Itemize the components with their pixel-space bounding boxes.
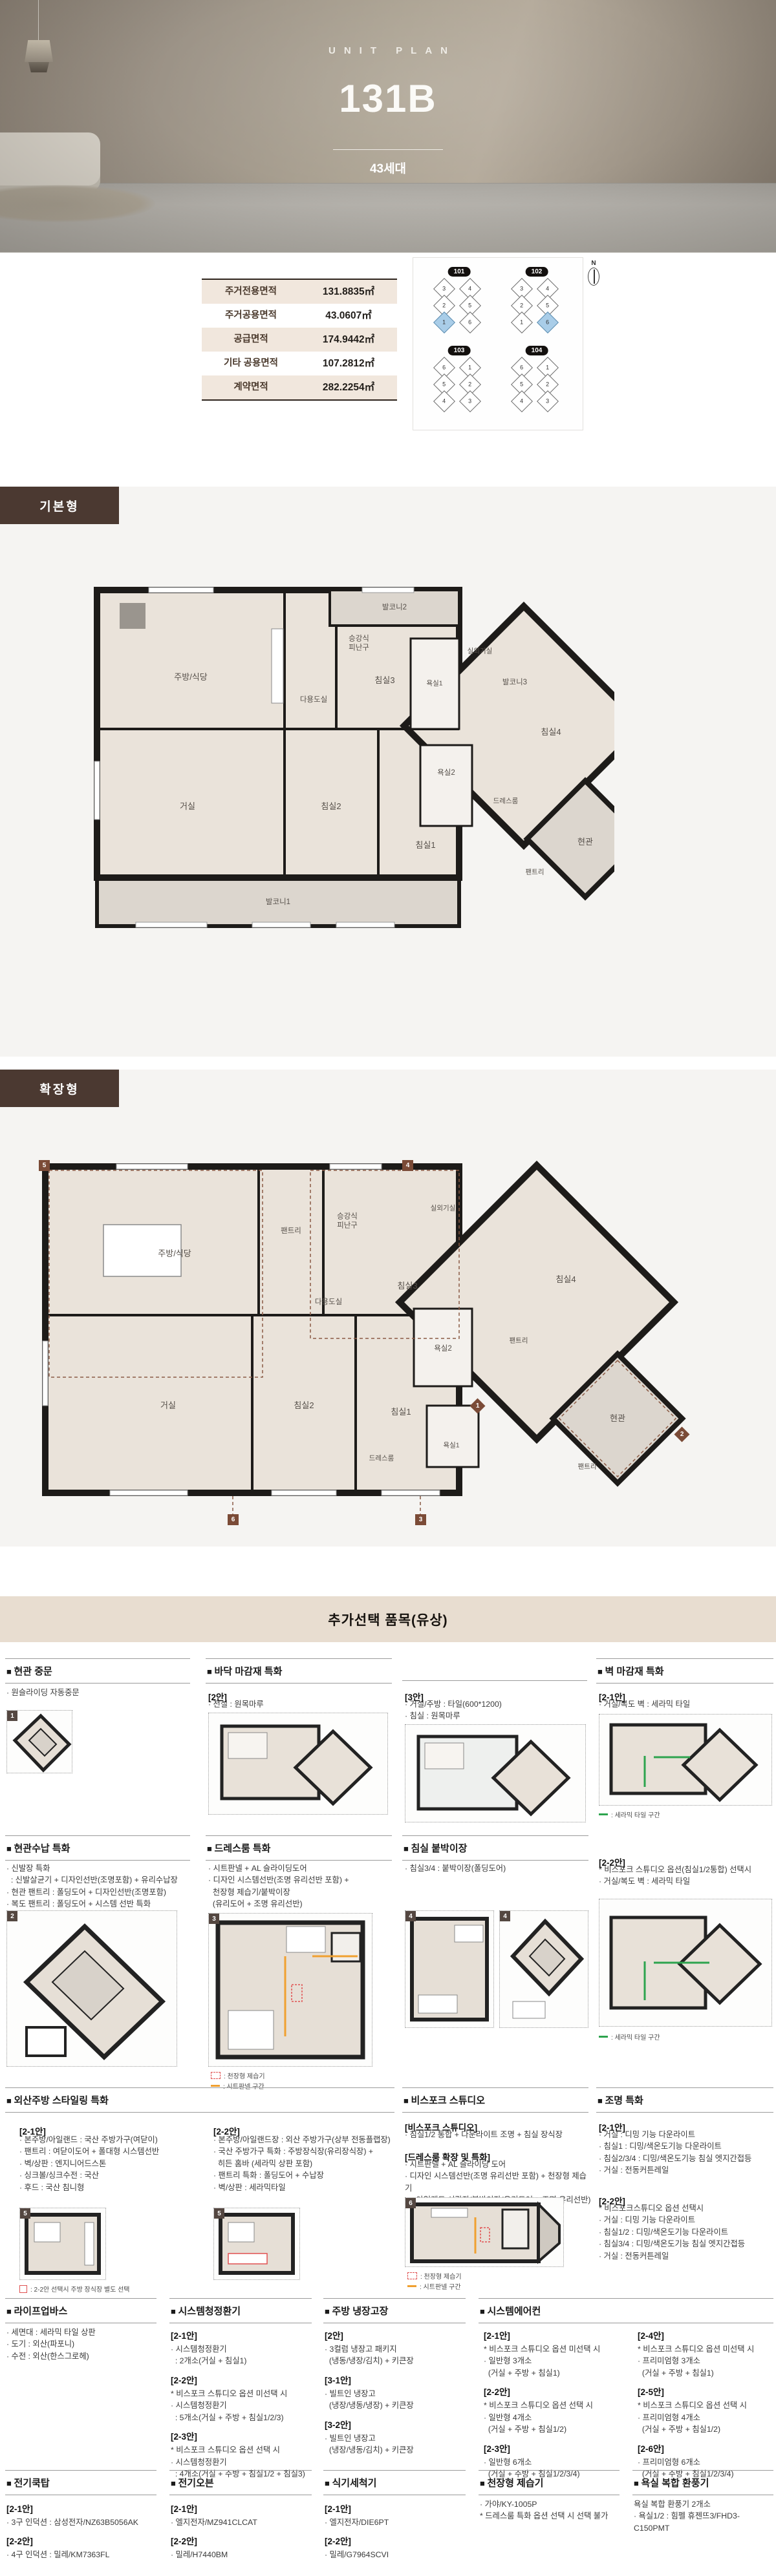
room-label: 주방/식당 (158, 1249, 191, 1259)
room-label: 실외기실 (431, 1204, 456, 1212)
section-title-dehumidifier: 천장형 제습기 (479, 2470, 620, 2495)
option-line: · 거실 : 디밍 기능 다운라이트 (599, 2129, 775, 2140)
section-title-oven: 전기오븐 (169, 2470, 312, 2495)
option-line: · 침실3/4 : 붙박이장(폴딩도어) (405, 1863, 587, 1874)
option-line: · 후드 : 국산 침니형 (19, 2182, 200, 2193)
option-line: 히든 홈바 (세라믹 상판 포함) (213, 2158, 400, 2170)
room-label: 침실4 (541, 727, 561, 737)
red-dashed-box-icon (211, 2072, 221, 2079)
option-line: · 시스템청정환기 (171, 2343, 313, 2355)
room-label: 거실 (160, 1400, 176, 1411)
option-line: * 비스포크 스튜디오 옵션 선택 시 (638, 2400, 773, 2411)
option-line: · 빌트인 냉장고 (325, 2388, 467, 2400)
option-line: · 수전 : 외산(한스그로헤) (6, 2350, 155, 2362)
option-line: (거실 + 주방 + 침실1) (638, 2367, 773, 2379)
legend-label: : 천장형 제습기 (420, 2271, 462, 2281)
option-line: 천장형 제습기/붙박이장 (208, 1886, 393, 1898)
option-lines: · 전실 : 원목마루 (208, 1698, 389, 1710)
option-line: · 빌트인 냉장고 (325, 2433, 467, 2444)
area-table: 주거전용면적 131.8835㎡ 주거공용면적 43.0607㎡ 공급면적 17… (202, 279, 397, 401)
room-label: 침실1 (415, 840, 435, 850)
section-title-builtin-closet: 침실 붙박이장 (402, 1835, 588, 1861)
area-label: 주거전용면적 (202, 280, 300, 304)
option-line: · 전실 : 원목마루 (208, 1698, 389, 1710)
room-label: 팬트리 (281, 1227, 301, 1236)
option-line: · 일반형 4개소 (484, 2412, 622, 2423)
section-title-dishwasher: 식기세척기 (323, 2470, 466, 2495)
option-line: · 거실/복도 벽 : 세라믹 타일 (599, 1698, 772, 1710)
area-label: 기타 공용면적 (202, 352, 300, 375)
option-line: * 비스포크 스튜디오 옵션 선택 시 (171, 2444, 313, 2456)
red-dashed-box-icon (407, 2272, 417, 2279)
proposal-head: [2-6안] (638, 2442, 773, 2455)
oven-groups: [2-1안] · 엘지전자/MZ941CLCAT [2-2안] · 밀레/H74… (171, 2496, 313, 2561)
room-label: 팬트리 (578, 1462, 597, 1471)
option-line: * 비스포크 스튜디오 옵션 미선택 시 (484, 2343, 622, 2355)
wall-finish-plan22-thumbnail (599, 1899, 772, 2027)
thumbnail-number-badge: 6 (405, 2198, 416, 2208)
proposal-head: [2-3안] (484, 2442, 622, 2455)
unit-cell: 4 (433, 390, 455, 412)
room-label: 욕실1 (426, 679, 442, 688)
option-line: · 벽/상판 : 엔지니어드스톤 (19, 2158, 200, 2170)
legend-label: : 세라믹 타일 구간 (611, 2032, 660, 2042)
option-lines: * 비스포크 스튜디오 옵션(침실1/2통합) 선택시· 거실/복도 벽 : 세… (599, 1864, 775, 1888)
section-title-bath-fan: 욕실 복합 환풍기 (632, 2470, 773, 2495)
option-line: · 디자인 시스템선반(조명 유리선반 포함) + (208, 1874, 393, 1886)
building-badge: 101 (448, 267, 471, 277)
option-line: (거실 + 주방 + 침실1/2) (638, 2423, 773, 2435)
option-line: · 싱크볼/싱크수전 : 국산 (19, 2170, 200, 2181)
option-line: * 비스포크 스튜디오 옵션 선택 시 (484, 2400, 622, 2411)
orange-line-icon (407, 2285, 416, 2287)
option-lines: · 거실 : 디밍 기능 다운라이트· 침실1 : 디밍/색온도기능 다운라이트… (599, 2129, 775, 2177)
building-badge: 102 (526, 267, 548, 277)
room-label: 거실 (180, 801, 195, 812)
room-label: 팬트리 (526, 868, 544, 876)
area-value: 174.9442㎡ (300, 328, 397, 352)
option-line: · 시스템청정환기 (171, 2456, 313, 2468)
room-label: 승강식 피난구 (337, 1212, 358, 1231)
option-line: · 시트판넬 + AL 슬라이딩 도어 (405, 2159, 592, 2170)
option-lines: · 가야/KY-1005P* 드레스룸 특화 옵션 선택 시 선택 불가 (480, 2498, 622, 2522)
divider (402, 1680, 587, 1681)
proposal-head: [2-2안] (484, 2385, 622, 2398)
table-row: 주거전용면적 131.8835㎡ (202, 280, 397, 304)
option-line: · 현관 팬트리 : 폴딩도어 + 디자인선반(조명포함) (6, 1886, 194, 1898)
aircon-col-b: [2-4안] * 비스포크 스튜디오 옵션 미선택 시· 프리미엄형 3개소 (… (638, 2323, 773, 2480)
room-label: 드레스룸 (493, 797, 519, 805)
option-line: · 세면대 : 세라믹 타일 상판 (6, 2327, 155, 2338)
unit-cell-highlighted: 1 (433, 311, 455, 333)
hero-divider (333, 149, 443, 150)
wall-finish-plan21-thumbnail (599, 1714, 772, 1806)
option-lines: · 시트판넬 + AL 슬라이딩도어· 디자인 시스템선반(조명 유리선반 포함… (208, 1863, 393, 1910)
option-line: : 2개소(거실 + 침실1) (171, 2355, 313, 2367)
option-line: · 4구 인덕션 : 밀레/KM7363FL (6, 2549, 158, 2560)
bespoke-studio-plan-thumbnail: 6 (405, 2197, 564, 2267)
option-line: · 원슬라이딩 자동중문 (6, 1687, 188, 1698)
section-title-import-kitchen: 외산주방 스타일링 특화 (5, 2087, 394, 2113)
legend-kitchen-cabinet-note: : 2-2안 선택시 주방 장식장 별도 선택 (19, 2284, 130, 2294)
option-lines: · 세면대 : 세라믹 타일 상판· 도기 : 외산(파포니)· 수전 : 외산… (6, 2327, 155, 2362)
section-title-entrance-door: 현관 중문 (5, 1658, 190, 1684)
option-line: · 거실 : 디밍 기능 다운라이트 (599, 2214, 775, 2226)
room-label: 침실2 (294, 1400, 314, 1411)
option-line: · 팬트리 : 여닫이도어 + 폴대형 시스템선반 (19, 2146, 200, 2157)
proposal-head: [2-1안] (171, 2328, 313, 2341)
option-line: (거실 + 주방 + 침실1) (484, 2367, 622, 2379)
extended-floor-plan: 주방/식당 팬트리 승강식 피난구 실외기실 침실4 침실3 다용도실 욕실2 … (19, 1147, 757, 1535)
option-line: · 본주방/아일랜드 : 국산 주방가구(여닫이) (19, 2134, 200, 2146)
building-103: 103 6 1 5 2 4 3 (424, 346, 495, 423)
thumbnail-number-badge: 5 (20, 2208, 30, 2219)
option-line: * 비스포크스튜디오 옵션 선택시 (599, 2202, 775, 2214)
legend-label: : 천장형 제습기 (224, 2071, 265, 2080)
option-line: · 거실 : 전동커튼레일 (599, 2250, 775, 2262)
option-line: · 일반형 6개소 (484, 2456, 622, 2468)
entrance-door-plan-thumbnail: 1 (6, 1710, 72, 1773)
section-title-floor-finish: 바닥 마감재 특화 (206, 1658, 392, 1684)
section-title-lighting: 조명 특화 (596, 2087, 773, 2113)
builtin-closet-plan-thumbnail-a: 4 (405, 1910, 494, 2028)
option-line: · 침실1/2 : 디밍/색온도기능 다운라이트 (599, 2226, 775, 2238)
dishwasher-groups: [2-1안] · 엘지전자/DIE6PT [2-2안] · 밀레/G7964SC… (325, 2496, 467, 2561)
room-label: 욕실2 (434, 1344, 452, 1353)
legend-dehumidifier: : 천장형 제습기 (407, 2271, 462, 2281)
area-label: 주거공용면적 (202, 304, 300, 328)
option-line: · 침실1 : 디밍/색온도기능 다운라이트 (599, 2140, 775, 2152)
building-102: 102 3 4 2 5 1 6 (501, 267, 572, 344)
proposal-head: [2-5안] (638, 2385, 773, 2398)
option-line: 욕실 복합 환풍기 2개소 (634, 2498, 775, 2510)
option-line: · 국산 주방가구 특화 : 주방장식장(유리장식장) + (213, 2146, 400, 2157)
building-location-map: 101 3 4 2 5 1 6 102 3 4 2 5 1 6 103 6 1 … (413, 257, 583, 430)
option-marker-4: 4 (402, 1160, 413, 1171)
option-line: · 팬트리 특화 : 폴딩도어 + 수납장 (213, 2170, 400, 2181)
option-line: · 밀레/H7440BM (171, 2549, 313, 2560)
building-badge: 103 (448, 346, 471, 355)
orange-line-icon (211, 2085, 220, 2087)
page-title: 131B (0, 76, 776, 121)
section-title-entrance-storage: 현관수납 특화 (5, 1835, 190, 1861)
entrance-storage-plan-thumbnail: 2 (6, 1910, 177, 2067)
proposal-head: [2-2안] (171, 2534, 313, 2547)
unit-cell: 4 (511, 390, 533, 412)
legend-ceramic-tile: : 세라믹 타일 구간 (599, 1810, 660, 1819)
green-line-icon (599, 1813, 608, 1815)
room-label: 발코니3 (502, 678, 527, 687)
option-line: · 침실3/4 : 디밍/색온도기능 침실 엣지간접등 (599, 2238, 775, 2250)
proposal-head: [2안] (325, 2328, 467, 2341)
room-label: 침실4 (555, 1274, 576, 1285)
building-104: 104 6 1 5 2 4 3 (501, 346, 572, 423)
option-line: · 가야/KY-1005P (480, 2498, 622, 2510)
option-line: · 욕실1/2 : 힘펠 휴젠뜨3/FHD3-C150PMT (634, 2510, 775, 2534)
dressroom-plan-thumbnail: 3 (208, 1913, 372, 2067)
area-label: 계약면적 (202, 375, 300, 399)
option-lines: · 침실1/2 통합 + 다운라이트 조명 + 침실 장식장 (405, 2129, 590, 2140)
option-line: · 도기 : 외산(파포니) (6, 2338, 155, 2350)
option-marker-3: 3 (415, 1514, 426, 1525)
room-label: 현관 (610, 1413, 625, 1424)
proposal-head: [3-1안] (325, 2373, 467, 2386)
proposal-head: [2-1안] (484, 2328, 622, 2341)
option-line: * 비스포크 스튜디오 옵션(침실1/2통합) 선택시 (599, 1864, 775, 1875)
area-label: 공급면적 (202, 328, 300, 352)
area-value: 43.0607㎡ (300, 304, 397, 328)
proposal-head: [2-4안] (638, 2328, 773, 2341)
section-title-kitchen-fridge: 주방 냉장고장 (323, 2298, 466, 2323)
option-line: : 신발살균기 + 디자인선반(조명포함) + 유리수납장 (6, 1874, 194, 1886)
option-line: (냉장/냉동/김치) + 키큰장 (325, 2444, 467, 2456)
option-line: · 거실/주방 : 타일(600*1200) (405, 1698, 586, 1710)
unit-count-label: 43세대 (0, 159, 776, 176)
room-label: 주방/식당 (174, 672, 207, 682)
option-lines: · 신발장 특화 : 신발살균기 + 디자인선반(조명포함) + 유리수납장· … (6, 1863, 194, 1910)
option-marker-5: 5 (39, 1160, 50, 1171)
option-line: · 복도 팬트리 : 폴딩도어 + 시스템 선반 특화 (6, 1898, 194, 1910)
proposal-head: [2-1안] (6, 2502, 158, 2515)
table-row: 공급면적 174.9442㎡ (202, 328, 397, 352)
room-label: 현관 (577, 837, 593, 847)
legend-dehumidifier: : 천장형 제습기 (211, 2071, 265, 2080)
building-badge: 104 (526, 346, 548, 355)
option-line: (냉동/냉장/김치) + 키큰장 (325, 2355, 467, 2367)
builtin-closet-plan-thumbnail-b: 4 (499, 1910, 588, 2028)
option-line: · 침실1/2 통합 + 다운라이트 조명 + 침실 장식장 (405, 2129, 590, 2140)
unit-cell: 1 (511, 311, 533, 333)
option-line: · 프리미엄형 4개소 (638, 2412, 773, 2423)
section-title-dressroom: 드레스룸 특화 (206, 1835, 392, 1861)
option-lines: · 침실3/4 : 붙박이장(폴딩도어) (405, 1863, 587, 1874)
option-line: · 침실 : 원목마루 (405, 1710, 586, 1722)
thumbnail-number-badge: 3 (209, 1914, 219, 1924)
option-lines: · 본주방/아일랜드장 : 외산 주방가구(상부 전동플랩장)· 국산 주방가구… (213, 2134, 400, 2193)
proposal-head: [3-2안] (325, 2418, 467, 2431)
proposal-head: [2-1안] (325, 2502, 467, 2515)
aircon-col-a: [2-1안] * 비스포크 스튜디오 옵션 미선택 시· 일반형 3개소 (거실… (484, 2323, 622, 2480)
room-label: 발코니2 (382, 603, 407, 612)
option-line: (유리도어 + 조명 유리선반) (208, 1898, 393, 1910)
room-label: 침실3 (374, 675, 394, 686)
proposal-head: [2-3안] (171, 2429, 313, 2442)
option-line: · 3컬럼 냉장고 패키지 (325, 2343, 467, 2355)
options-banner: 추가선택 품목(유상) (0, 1596, 776, 1642)
room-label: 침실2 (321, 801, 341, 812)
option-line: : 5개소(거실 + 주방 + 침실1/2/3) (171, 2412, 313, 2423)
legend-label: : 2-2안 선택시 주방 장식장 별도 선택 (30, 2284, 130, 2294)
unit-cell: 3 (459, 390, 481, 412)
option-line: · 일반형 3개소 (484, 2355, 622, 2367)
green-line-icon (599, 2036, 608, 2038)
section-title-ventilation: 시스템청정환기 (169, 2298, 312, 2323)
unit-cell-highlighted: 6 (537, 311, 559, 333)
hero-vignette (0, 0, 776, 252)
table-row: 계약면적 282.2254㎡ (202, 375, 397, 399)
option-line: · 3구 인덕션 : 삼성전자/NZ63B5056AK (6, 2517, 158, 2528)
building-101: 101 3 4 2 5 1 6 (424, 267, 495, 344)
tab-extended-plan: 확장형 (0, 1070, 119, 1107)
cooktop-groups: [2-1안] · 3구 인덕션 : 삼성전자/NZ63B5056AK [2-2안… (6, 2496, 158, 2561)
option-line: · 침실2/3/4 : 디밍/색온도기능 침실 엣지간접등 (599, 2153, 775, 2164)
option-line: · 시트판넬 + AL 슬라이딩도어 (208, 1863, 393, 1874)
area-value: 131.8835㎡ (300, 280, 397, 304)
room-label: 욕실2 (437, 768, 455, 777)
option-line: * 비스포크 스튜디오 옵션 미선택 시 (638, 2343, 773, 2355)
option-lines: * 비스포크스튜디오 옵션 선택시· 거실 : 디밍 기능 다운라이트· 침실1… (599, 2202, 775, 2262)
option-line: · 엘지전자/MZ941CLCAT (171, 2517, 313, 2528)
legend-ceramic-tile: : 세라믹 타일 구간 (599, 2032, 660, 2042)
area-value: 107.2812㎡ (300, 352, 397, 375)
basic-floor-plan-drawing (58, 567, 614, 987)
table-row: 기타 공용면적 107.2812㎡ (202, 352, 397, 375)
option-line: · 밀레/G7964SCVI (325, 2549, 467, 2560)
table-row: 주거공용면적 43.0607㎡ (202, 304, 397, 328)
option-line: * 비스포크 스튜디오 옵션 미선택 시 (171, 2388, 313, 2400)
extended-floor-plan-drawing (19, 1147, 757, 1535)
section-title-wall-finish: 벽 마감재 특화 (596, 1658, 773, 1684)
section-title-lifeup-bath: 라이프업바스 (5, 2298, 156, 2323)
thumbnail-number-badge: 2 (7, 1911, 17, 1921)
room-label: 침실1 (391, 1407, 411, 1417)
thumbnail-number-badge: 5 (214, 2208, 224, 2219)
option-line: · 시스템청정환기 (171, 2400, 313, 2411)
option-lines: · 거실/복도 벽 : 세라믹 타일 (599, 1698, 772, 1710)
option-line: · 신발장 특화 (6, 1863, 194, 1874)
thumbnail-number-badge: 4 (405, 1911, 416, 1921)
option-line: · 프리미엄형 3개소 (638, 2355, 773, 2367)
room-label: 욕실1 (443, 1441, 459, 1450)
option-lines: · 거실/주방 : 타일(600*1200)· 침실 : 원목마루 (405, 1698, 586, 1722)
room-label: 침실3 (397, 1281, 417, 1291)
basic-floor-plan: 주방/식당 다용도실 승강식 피난구 발코니2 침실3 욕실1 실외기실 발코니… (58, 567, 614, 987)
option-line: · 디자인 시스템선반(조명 유리선반 포함) + 천장형 제습기 (405, 2170, 592, 2194)
section-title-cooktop: 전기쿡탑 (5, 2470, 156, 2495)
option-line: * 드레스룸 특화 옵션 선택 시 선택 불가 (480, 2510, 622, 2522)
option-lines: · 본주방/아일랜드 : 국산 주방가구(여닫이)· 팬트리 : 여닫이도어 +… (19, 2134, 200, 2193)
ventilation-groups: [2-1안] · 시스템청정환기 : 2개소(거실 + 침실1) [2-2안] … (171, 2323, 313, 2480)
tab-basic-plan: 기본형 (0, 487, 119, 524)
hero-image: UNIT PLAN 131B 43세대 (0, 0, 776, 252)
import-kitchen-plan-thumbnail-b: 5 (213, 2208, 300, 2280)
section-title-system-aircon: 시스템에어컨 (479, 2298, 773, 2323)
section-title-bespoke-studio: 비스포크 스튜디오 (402, 2087, 588, 2113)
proposal-head: [2-2안] (6, 2534, 158, 2547)
option-marker-6: 6 (228, 1514, 239, 1525)
unit-cell: 6 (459, 311, 481, 333)
area-value: 282.2254㎡ (300, 375, 397, 399)
option-lines: · 원슬라이딩 자동중문 (6, 1687, 188, 1698)
option-line: · 벽/상판 : 세라믹타일 (213, 2182, 400, 2193)
option-line: · 프리미엄형 6개소 (638, 2456, 773, 2468)
option-line: · 본주방/아일랜드장 : 외산 주방가구(상부 전동플랩장) (213, 2134, 400, 2146)
legend-label: : 세라믹 타일 구간 (611, 1810, 660, 1819)
hero-eyebrow: UNIT PLAN (0, 45, 776, 56)
room-label: 승강식 피난구 (349, 635, 369, 653)
north-arrow-icon: N (585, 260, 602, 290)
room-label: 다용도실 (300, 695, 327, 704)
room-label: 발코니1 (266, 898, 290, 907)
import-kitchen-plan-thumbnail-a: 5 (19, 2208, 106, 2280)
option-line: (거실 + 주방 + 침실1/2) (484, 2423, 622, 2435)
unit-cell: 3 (537, 390, 559, 412)
proposal-head: [2-1안] (171, 2502, 313, 2515)
fridge-groups: [2안] · 3컬럼 냉장고 패키지 (냉동/냉장/김치) + 키큰장 [3-1… (325, 2323, 467, 2456)
legend-label: : 시트판넬 구간 (420, 2281, 461, 2291)
room-label: 다용도실 (315, 1298, 342, 1307)
proposal-head: [2-2안] (325, 2534, 467, 2547)
red-box-icon (19, 2285, 27, 2293)
option-line: · 엘지전자/DIE6PT (325, 2517, 467, 2528)
option-line: · 거실 : 전동커튼레일 (599, 2164, 775, 2176)
option-lines: 욕실 복합 환풍기 2개소· 욕실1/2 : 힘펠 휴젠뜨3/FHD3-C150… (634, 2498, 775, 2534)
proposal-head: [2-2안] (171, 2373, 313, 2386)
room-label: 드레스룸 (369, 1454, 394, 1462)
room-label: 실외기실 (468, 647, 493, 655)
thumbnail-number-badge: 4 (500, 1911, 510, 1921)
floor-finish-plan3-thumbnail (405, 1724, 586, 1822)
room-label: 팬트리 (510, 1336, 528, 1345)
floor-finish-plan2-thumbnail (208, 1713, 388, 1815)
option-line: (냉장/냉동/냉장) + 키큰장 (325, 2400, 467, 2411)
option-line: · 거실/복도 벽 : 세라믹 타일 (599, 1875, 775, 1887)
legend-sheet-panel: : 시트판넬 구간 (407, 2281, 461, 2291)
thumbnail-number-badge: 1 (7, 1711, 17, 1721)
